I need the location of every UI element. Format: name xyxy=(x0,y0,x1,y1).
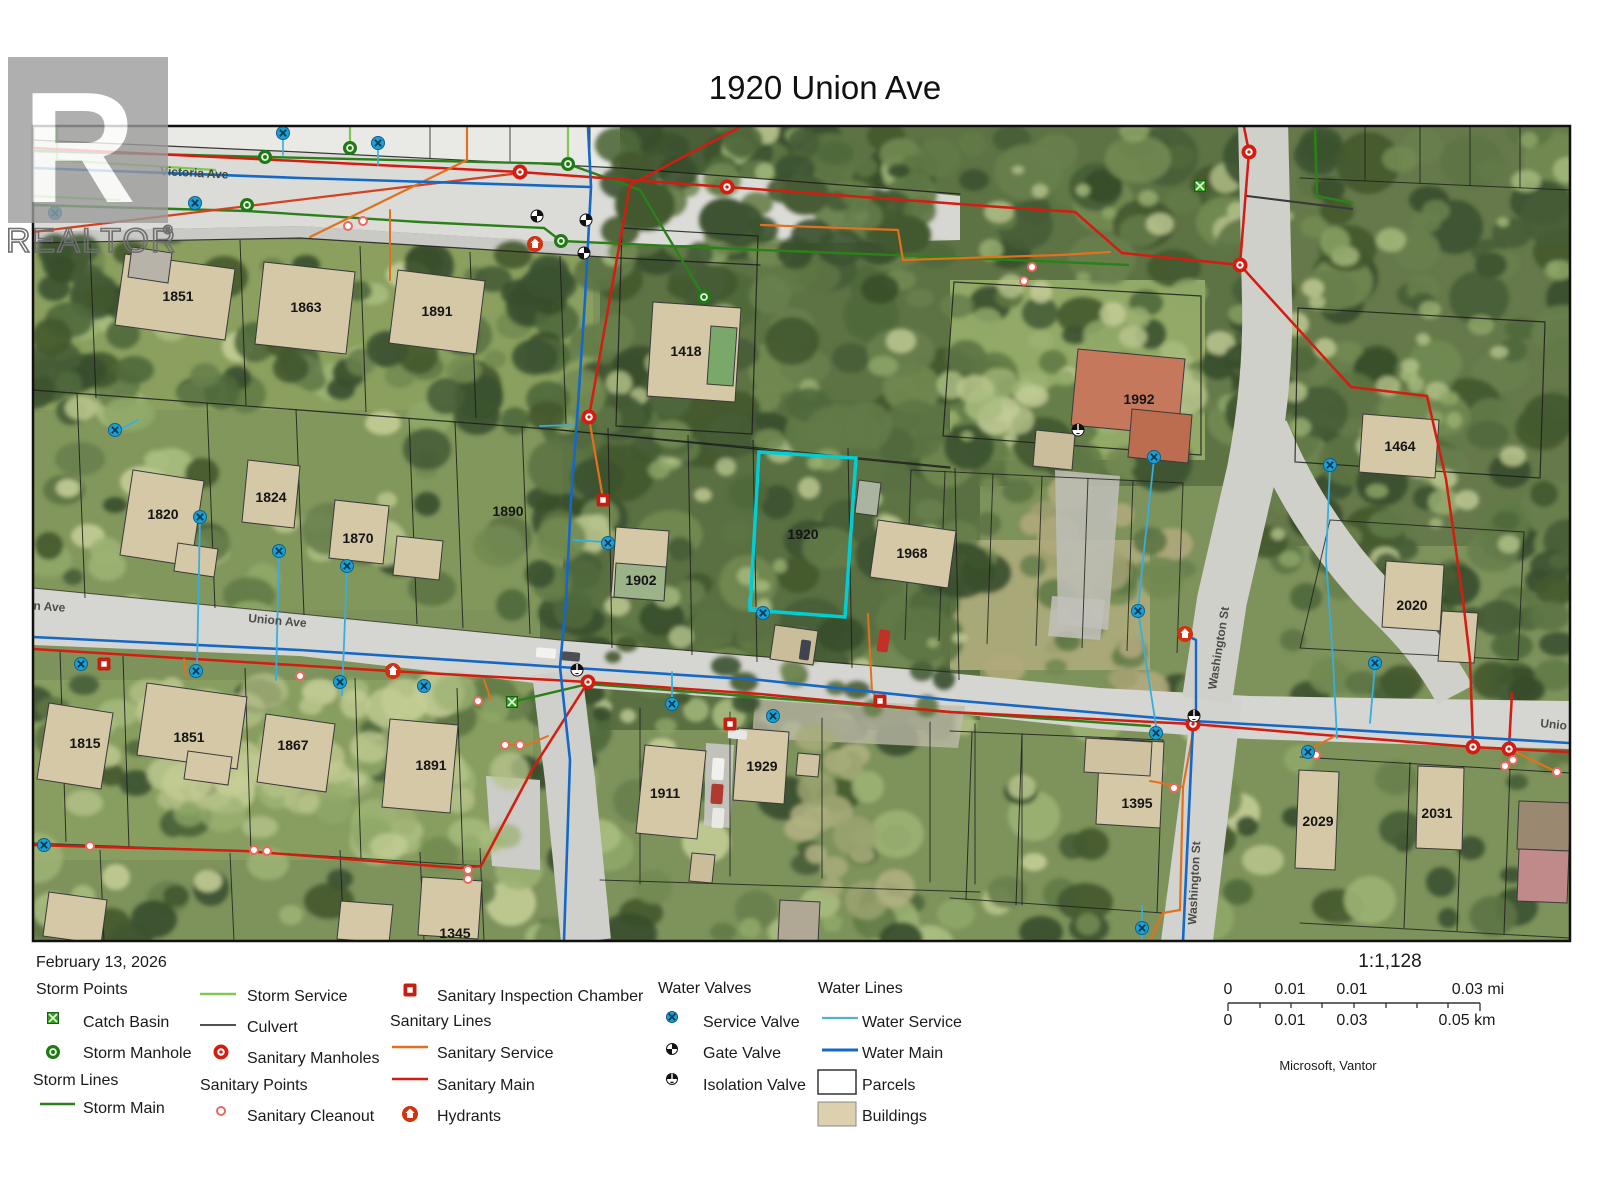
svg-text:Service Valve: Service Valve xyxy=(703,1014,800,1031)
svg-text:1891: 1891 xyxy=(415,757,446,773)
svg-text:1820: 1820 xyxy=(147,506,178,522)
svg-text:1968: 1968 xyxy=(896,545,927,561)
svg-text:Water Valves: Water Valves xyxy=(658,980,751,997)
svg-text:0.05 km: 0.05 km xyxy=(1439,1012,1496,1029)
svg-text:Sanitary Lines: Sanitary Lines xyxy=(390,1013,491,1030)
svg-text:Buildings: Buildings xyxy=(862,1108,927,1125)
svg-text:0.01: 0.01 xyxy=(1336,981,1367,998)
svg-text:Water Service: Water Service xyxy=(862,1014,962,1031)
svg-text:Sanitary Manholes: Sanitary Manholes xyxy=(247,1050,380,1067)
svg-text:1815: 1815 xyxy=(69,735,100,751)
svg-text:Gate Valve: Gate Valve xyxy=(703,1045,781,1062)
svg-text:0: 0 xyxy=(1224,981,1233,998)
svg-text:1870: 1870 xyxy=(342,530,373,546)
svg-text:Sanitary Main: Sanitary Main xyxy=(437,1077,535,1094)
svg-text:2031: 2031 xyxy=(1421,805,1452,821)
svg-text:1851: 1851 xyxy=(162,288,193,304)
svg-text:Culvert: Culvert xyxy=(247,1019,298,1036)
svg-text:Isolation Valve: Isolation Valve xyxy=(703,1077,806,1094)
svg-text:1863: 1863 xyxy=(290,299,321,315)
svg-text:1395: 1395 xyxy=(1121,795,1152,811)
svg-text:1464: 1464 xyxy=(1384,438,1415,454)
svg-text:Sanitary Points: Sanitary Points xyxy=(200,1077,308,1094)
svg-text:1929: 1929 xyxy=(746,758,777,774)
svg-text:Sanitary Cleanout: Sanitary Cleanout xyxy=(247,1108,375,1125)
svg-text:REALTOR: REALTOR xyxy=(6,222,177,260)
svg-text:1992: 1992 xyxy=(1123,391,1154,407)
svg-text:1824: 1824 xyxy=(255,489,286,505)
svg-text:Water Main: Water Main xyxy=(862,1045,943,1062)
svg-text:Hydrants: Hydrants xyxy=(437,1108,501,1125)
svg-text:Microsoft, Vantor: Microsoft, Vantor xyxy=(1279,1058,1377,1073)
svg-text:February 13, 2026: February 13, 2026 xyxy=(36,954,167,971)
svg-text:Parcels: Parcels xyxy=(862,1077,915,1094)
svg-text:R: R xyxy=(22,60,136,236)
svg-text:Storm Points: Storm Points xyxy=(36,981,128,998)
svg-text:Storm Lines: Storm Lines xyxy=(33,1072,118,1089)
svg-text:1902: 1902 xyxy=(625,572,656,588)
svg-text:2029: 2029 xyxy=(1302,813,1333,829)
svg-text:1891: 1891 xyxy=(421,303,452,319)
svg-text:0.01: 0.01 xyxy=(1274,981,1305,998)
svg-text:2020: 2020 xyxy=(1396,597,1427,613)
svg-text:Sanitary Service: Sanitary Service xyxy=(437,1045,554,1062)
svg-text:0.03 mi: 0.03 mi xyxy=(1452,981,1504,998)
svg-text:1851: 1851 xyxy=(173,729,204,745)
svg-text:1418: 1418 xyxy=(670,343,701,359)
svg-text:1345: 1345 xyxy=(439,925,470,941)
svg-text:Sanitary Inspection Chamber: Sanitary Inspection Chamber xyxy=(437,988,644,1005)
svg-text:0.01: 0.01 xyxy=(1274,1012,1305,1029)
svg-text:1:1,128: 1:1,128 xyxy=(1358,951,1421,972)
svg-text:0.03: 0.03 xyxy=(1336,1012,1367,1029)
svg-text:Storm Service: Storm Service xyxy=(247,988,348,1005)
svg-text:0: 0 xyxy=(1224,1012,1233,1029)
svg-text:Catch Basin: Catch Basin xyxy=(83,1014,169,1031)
svg-text:1920: 1920 xyxy=(787,526,818,542)
svg-text:1890: 1890 xyxy=(492,503,523,519)
svg-text:Unio: Unio xyxy=(1540,716,1568,733)
svg-text:Storm Main: Storm Main xyxy=(83,1100,165,1117)
svg-text:Storm Manhole: Storm Manhole xyxy=(83,1045,192,1062)
svg-text:1911: 1911 xyxy=(650,785,681,801)
svg-text:Water Lines: Water Lines xyxy=(818,980,903,997)
svg-text:1920 Union Ave: 1920 Union Ave xyxy=(709,69,941,106)
svg-text:1867: 1867 xyxy=(277,737,308,753)
svg-text:®: ® xyxy=(163,222,173,237)
